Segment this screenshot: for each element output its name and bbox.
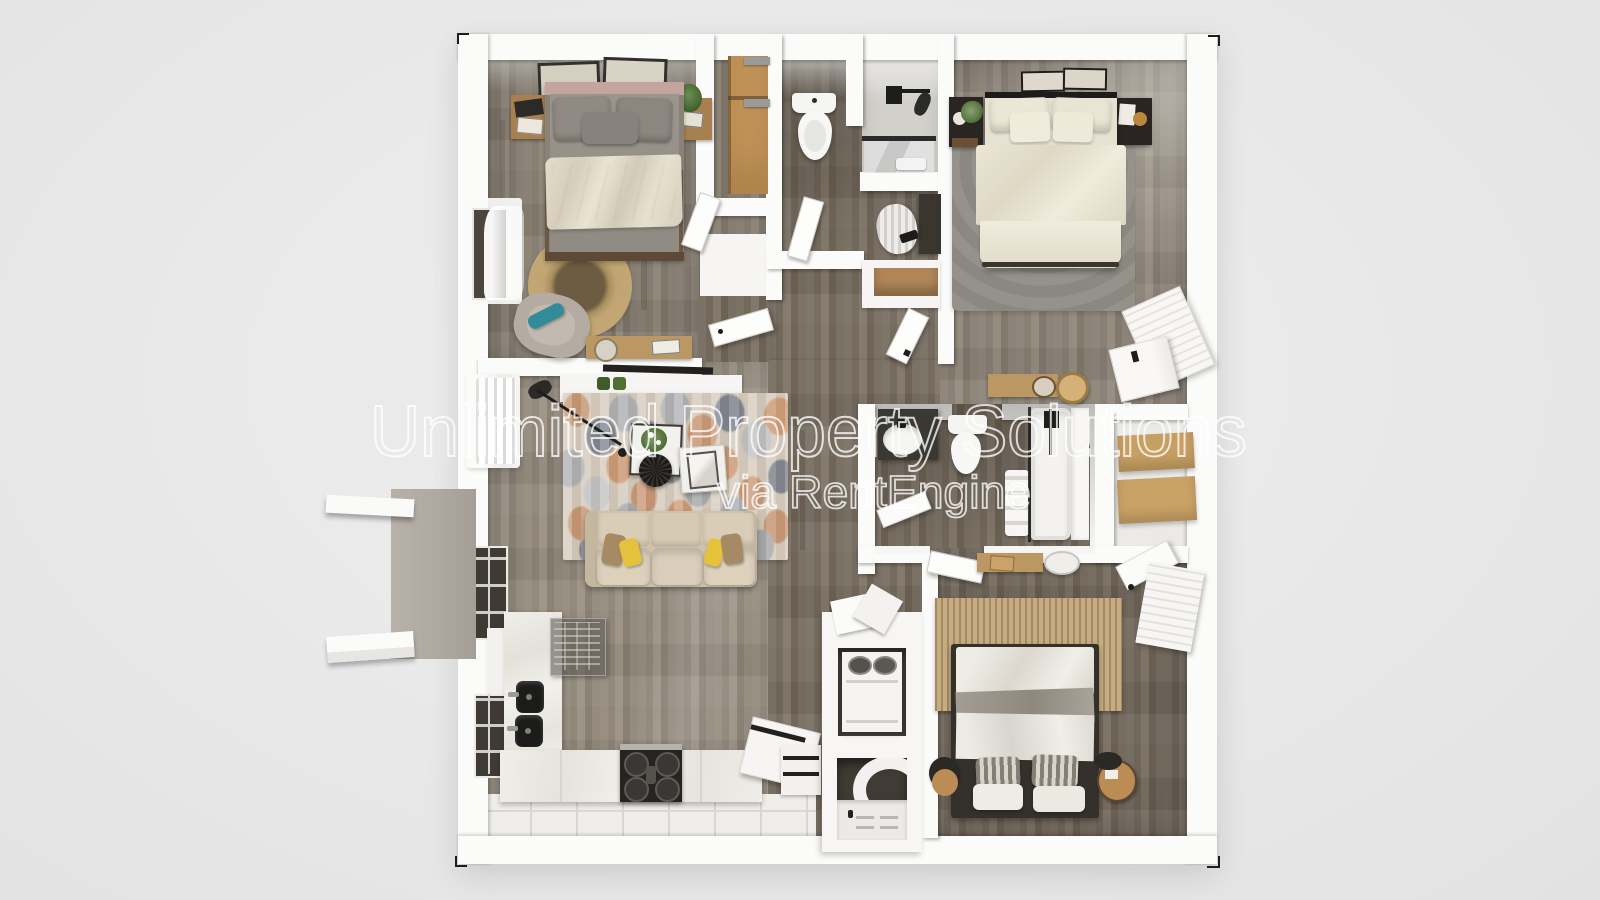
svg-text:Unlimited Property Solutions: Unlimited Property Solutions <box>370 392 1247 472</box>
svg-text:via RentEngine: via RentEngine <box>717 466 1031 518</box>
